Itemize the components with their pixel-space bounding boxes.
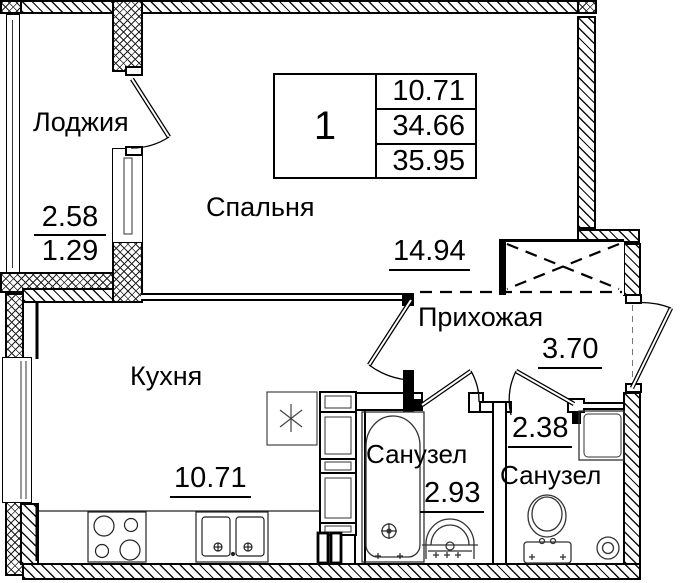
vent-shaft xyxy=(267,392,317,445)
room-area-bedroom: 14.94 xyxy=(389,236,470,271)
loggia-area-full: 2.58 xyxy=(34,202,106,236)
wall-pillar-upper xyxy=(112,0,143,72)
wall-pillar-lower xyxy=(112,240,143,303)
floor-drain xyxy=(597,537,619,559)
toilet xyxy=(524,495,571,563)
washing-machine xyxy=(579,411,624,460)
wall-top-left-corner xyxy=(0,0,22,14)
legend-value-row: 35.95 xyxy=(377,143,475,178)
entrance-jamb-bottom xyxy=(625,383,642,393)
room-label-kitchen: Кухня xyxy=(130,362,202,390)
loggia-area-reduced: 1.29 xyxy=(34,236,106,267)
room-area-hallway: 3.70 xyxy=(538,334,602,369)
room-label-loggia: Лоджия xyxy=(33,108,129,136)
wall-bath1-left xyxy=(354,392,366,565)
legend-value-row: 34.66 xyxy=(377,108,475,143)
partition-bedroom xyxy=(141,293,413,301)
legend-unit-number: 1 xyxy=(275,75,375,177)
post-bath1-hinge xyxy=(414,399,423,411)
bathtub xyxy=(362,412,424,562)
post-bathtub-nook xyxy=(403,370,414,412)
loggia-door-jamb-top xyxy=(125,66,143,76)
wall-top-right-corner xyxy=(577,0,597,14)
loggia-door xyxy=(131,79,169,148)
kitchen-window xyxy=(2,357,32,503)
legend-table: 1 10.71 34.66 35.95 xyxy=(273,73,477,179)
loggia-area-fraction: 2.58 1.29 xyxy=(34,202,106,268)
wall-right-bedroom xyxy=(577,16,596,229)
floor-plan: 1 10.71 34.66 35.95 Лоджия 2.58 1.29 Спа… xyxy=(0,0,680,583)
entrance-jamb-top xyxy=(625,294,642,304)
room-area-bathroom-1: 2.93 xyxy=(420,478,484,513)
post-bedroom-door xyxy=(402,293,414,306)
room-label-bathroom-1: Санузел xyxy=(366,441,467,468)
loggia-glazing xyxy=(6,14,20,273)
bathroom-2-door xyxy=(509,371,574,415)
wall-bath2-top-thin xyxy=(583,402,623,410)
room-area-kitchen: 10.71 xyxy=(170,463,251,498)
room-label-bedroom: Спальня xyxy=(206,193,315,221)
wall-right-lower xyxy=(623,392,641,565)
kitchen-sink xyxy=(196,512,268,562)
wall-kitchen-top-ext xyxy=(22,288,117,303)
wall-right-upper xyxy=(623,243,641,296)
entrance-door xyxy=(632,303,671,388)
post-bath2-jamb xyxy=(572,413,581,424)
riser-pipes xyxy=(318,533,341,563)
stove xyxy=(88,512,146,562)
legend-value-row: 10.71 xyxy=(377,75,475,108)
wall-bottom xyxy=(22,563,641,580)
loggia-bedroom-window xyxy=(112,148,143,243)
wardrobe-niche xyxy=(499,239,624,295)
cabinet-column xyxy=(320,392,356,535)
wall-kitchen-corner-block xyxy=(20,503,39,565)
room-area-bathroom-2: 2.38 xyxy=(508,413,572,448)
loggia-door-jamb-bottom xyxy=(125,146,143,156)
wall-top xyxy=(0,0,597,14)
legend-values: 10.71 34.66 35.95 xyxy=(375,75,475,177)
room-label-hallway: Прихожая xyxy=(418,303,543,331)
washbasin xyxy=(422,519,478,559)
bedroom-door xyxy=(369,300,411,380)
wall-left-kitchen-top xyxy=(5,293,24,359)
room-label-bathroom-2: Санузел xyxy=(500,462,601,489)
